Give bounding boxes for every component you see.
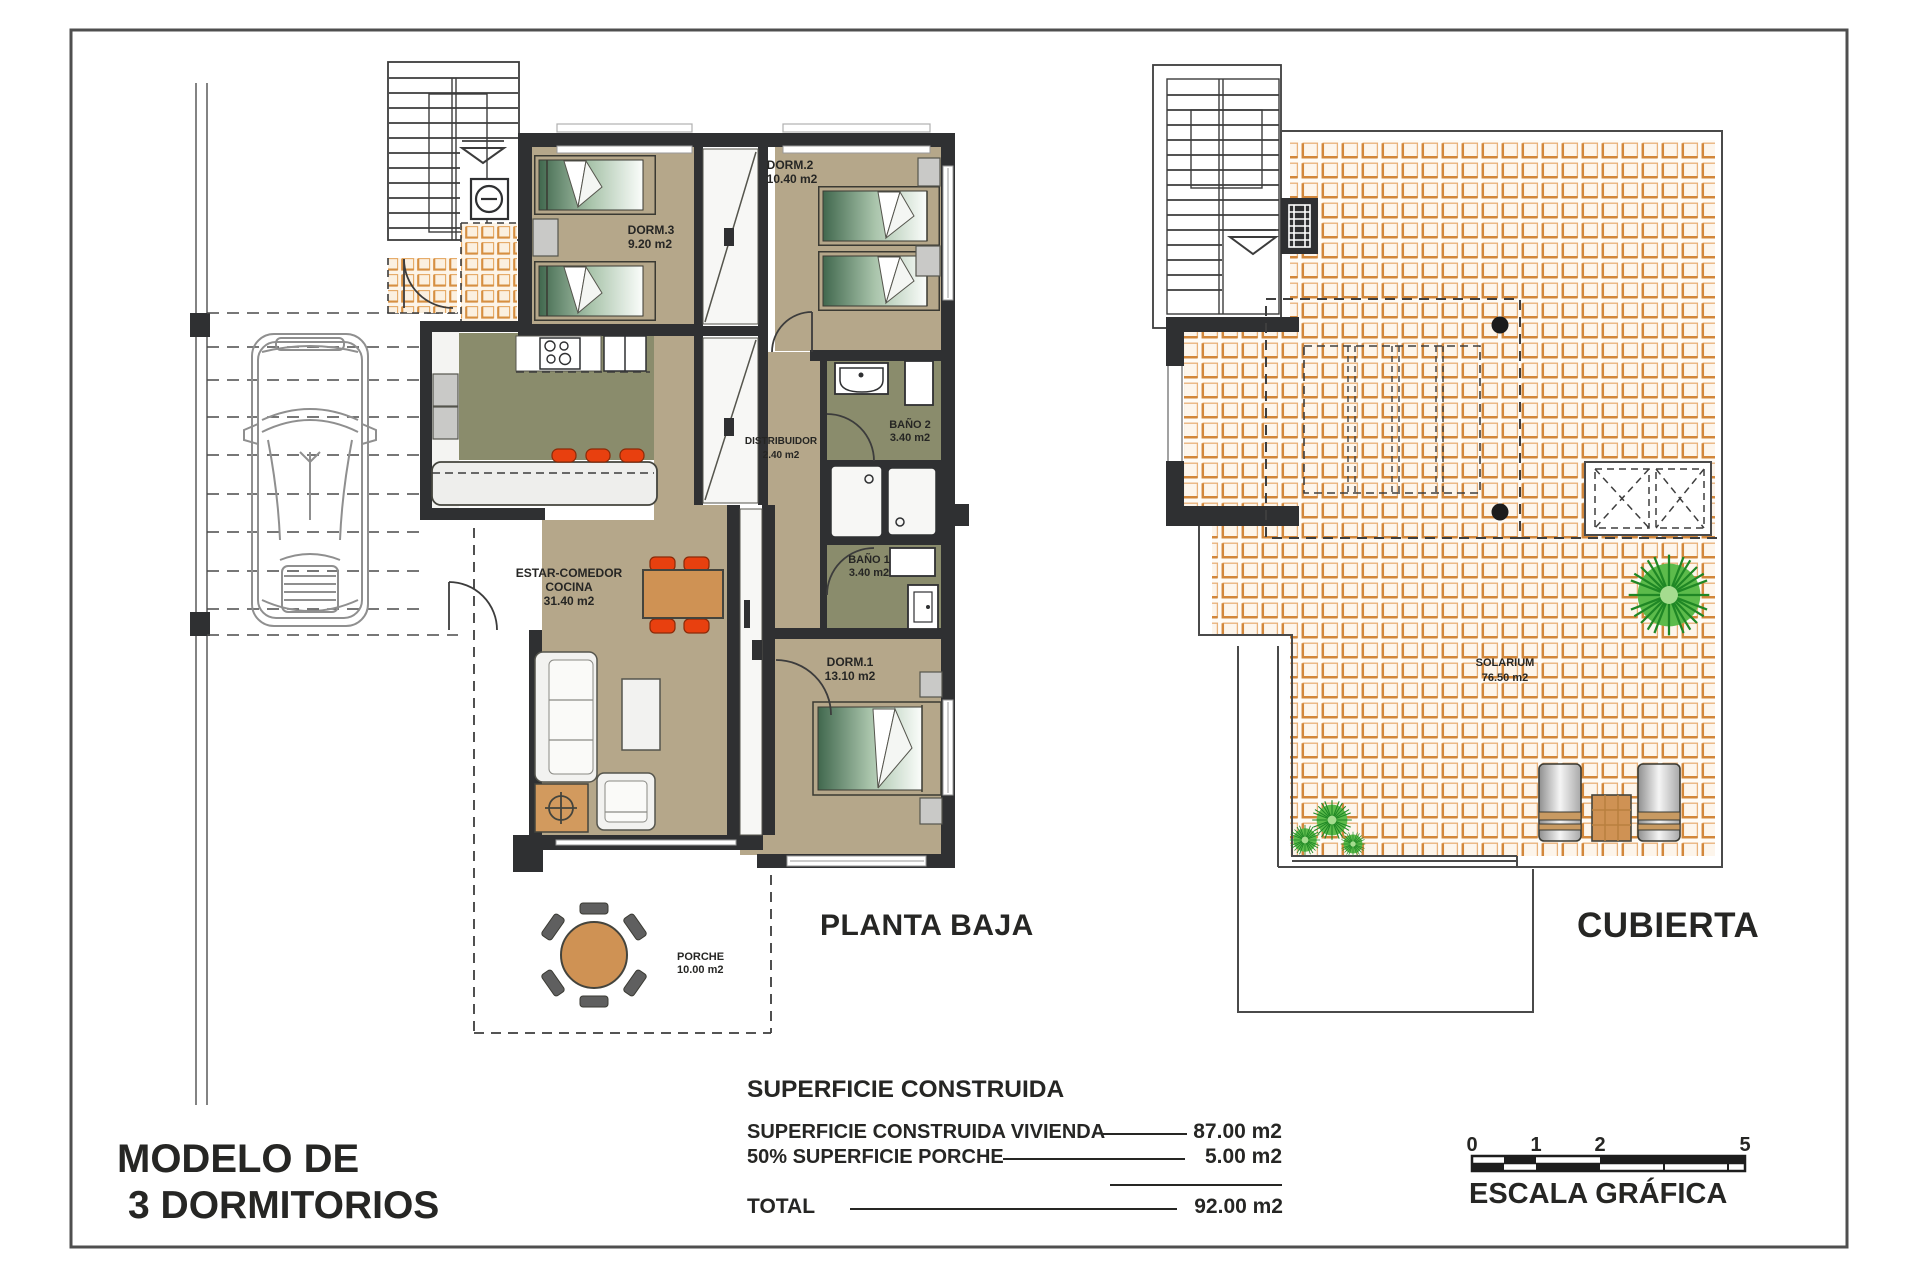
svg-text:DORM.1: DORM.1 [827,655,874,669]
svg-text:COCINA: COCINA [545,580,593,594]
svg-text:ESTAR-COMEDOR: ESTAR-COMEDOR [516,566,623,580]
svg-text:76.50 m2: 76.50 m2 [1482,672,1528,684]
svg-text:10.40 m2: 10.40 m2 [767,172,818,186]
svg-text:2.40 m2: 2.40 m2 [763,450,800,461]
svg-text:TOTAL: TOTAL [747,1195,815,1218]
svg-text:PLANTA BAJA: PLANTA BAJA [820,909,1034,942]
svg-text:50% SUPERFICIE PORCHE: 50% SUPERFICIE PORCHE [747,1146,1004,1168]
svg-text:3.40 m2: 3.40 m2 [890,432,930,444]
svg-text:31.40 m2: 31.40 m2 [544,594,595,608]
svg-text:DORM.3: DORM.3 [628,223,675,237]
svg-text:BAÑO 1: BAÑO 1 [848,553,890,566]
svg-text:9.20 m2: 9.20 m2 [628,237,672,251]
svg-text:92.00 m2: 92.00 m2 [1194,1195,1283,1218]
svg-text:13.10 m2: 13.10 m2 [825,669,876,683]
svg-text:5: 5 [1739,1134,1750,1156]
svg-text:BAÑO 2: BAÑO 2 [889,418,931,431]
svg-text:3 DORMITORIOS: 3 DORMITORIOS [128,1184,439,1227]
svg-text:2: 2 [1594,1134,1605,1156]
svg-text:1: 1 [1530,1134,1541,1156]
svg-text:SUPERFICIE CONSTRUIDA VIVIENDA: SUPERFICIE CONSTRUIDA VIVIENDA [747,1121,1105,1143]
svg-text:DORM.2: DORM.2 [767,158,814,172]
svg-text:DISTRIBUIDOR: DISTRIBUIDOR [745,436,818,447]
svg-text:5.00 m2: 5.00 m2 [1205,1145,1282,1168]
svg-text:SUPERFICIE CONSTRUIDA: SUPERFICIE CONSTRUIDA [747,1076,1064,1103]
svg-text:PORCHE: PORCHE [677,951,724,963]
svg-text:CUBIERTA: CUBIERTA [1577,906,1759,945]
svg-text:ESCALA GRÁFICA: ESCALA GRÁFICA [1469,1176,1727,1210]
svg-text:0: 0 [1466,1134,1477,1156]
svg-text:3.40 m2: 3.40 m2 [849,567,889,579]
svg-text:87.00 m2: 87.00 m2 [1193,1120,1282,1143]
svg-text:MODELO DE: MODELO DE [117,1137,359,1181]
svg-text:10.00 m2: 10.00 m2 [677,964,723,976]
svg-text:SOLARIUM: SOLARIUM [1476,657,1535,669]
